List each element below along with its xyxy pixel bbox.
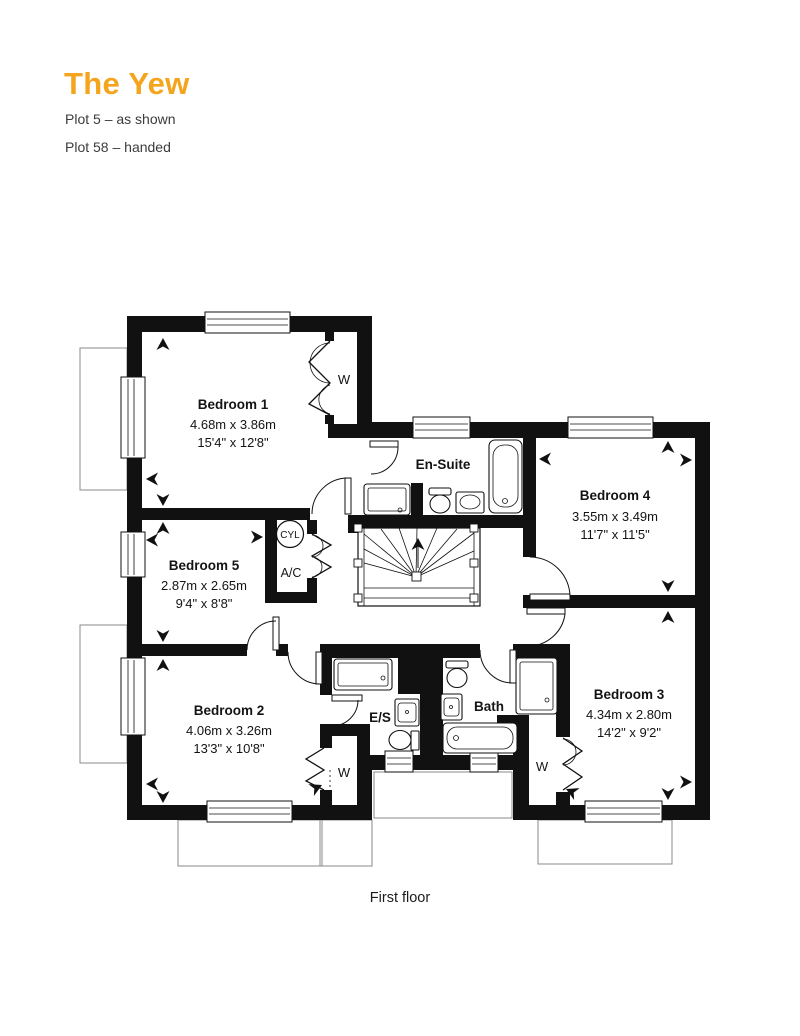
door (312, 478, 351, 514)
basin-icon (395, 699, 419, 726)
window (413, 417, 470, 438)
room-dim-metric: 2.87m x 2.65m (161, 578, 247, 593)
basin-icon (456, 492, 484, 513)
staircase (354, 524, 480, 606)
bedroom1-room: Bedroom 1 4.68m x 3.86m 15'4" x 12'8" (190, 397, 276, 450)
room-dim-imperial: 13'3" x 10'8" (193, 741, 265, 756)
room-name: Bedroom 3 (594, 687, 665, 702)
room-dim-metric: 4.06m x 3.26m (186, 723, 272, 738)
floorplan-page: The Yew Plot 5 – as shown Plot 58 – hand… (0, 0, 800, 1036)
room-dim-metric: 4.68m x 3.86m (190, 417, 276, 432)
shower-icon (516, 658, 557, 714)
door (288, 652, 322, 684)
cylinder-symbol: CYL (277, 521, 304, 548)
window (205, 312, 290, 333)
room-dim-imperial: 11'7" x 11'5" (580, 527, 650, 542)
basin-icon (441, 694, 462, 720)
room-name: Bedroom 5 (169, 558, 240, 573)
toilet-icon (389, 731, 419, 751)
window (121, 658, 145, 735)
wardrobe-label: W (338, 765, 351, 780)
ensuite-fixtures (364, 440, 522, 515)
door (247, 617, 279, 650)
bathtub-icon (443, 723, 517, 753)
window (385, 751, 413, 772)
floor-caption: First floor (0, 890, 800, 906)
bedroom2-room: Bedroom 2 4.06m x 3.26m 13'3" x 10'8" (186, 703, 272, 756)
window (121, 377, 145, 458)
bath-label: Bath (474, 699, 504, 714)
bedroom5-room: Bedroom 5 2.87m x 2.65m 9'4" x 8'8" (161, 558, 247, 611)
shower-icon (334, 659, 392, 690)
toilet-icon (446, 661, 468, 688)
room-dim-imperial: 14'2" x 9'2" (597, 725, 661, 740)
window (585, 801, 662, 822)
door (332, 695, 362, 726)
bedroom4-room: Bedroom 4 3.55m x 3.49m 11'7" x 11'5" (572, 488, 658, 542)
bedroom3-room: Bedroom 3 4.34m x 2.80m 14'2" x 9'2" (586, 687, 672, 740)
room-name: Bedroom 4 (580, 488, 651, 503)
es-label: E/S (369, 710, 391, 725)
room-name: Bedroom 1 (198, 397, 269, 412)
floor-plan-svg: CYL Bedroom 1 (0, 0, 800, 1036)
shower-icon (364, 484, 410, 515)
room-name: Bedroom 2 (194, 703, 265, 718)
airing-cupboard-label: A/C (281, 566, 302, 580)
door (370, 441, 398, 474)
bifold-door (309, 341, 330, 415)
room-dim-imperial: 15'4" x 12'8" (197, 435, 269, 450)
room-dim-imperial: 9'4" x 8'8" (176, 596, 233, 611)
room-dim-metric: 4.34m x 2.80m (586, 707, 672, 722)
door (530, 557, 570, 600)
bifold-door (312, 534, 331, 578)
cylinder-label: CYL (280, 530, 300, 541)
wardrobe-label: W (338, 372, 351, 387)
window (207, 801, 292, 822)
ensuite-label: En-Suite (416, 457, 471, 472)
toilet-icon (429, 488, 451, 513)
room-dim-metric: 3.55m x 3.49m (572, 509, 658, 524)
bathtub-icon (489, 440, 522, 513)
bifold-door (563, 738, 582, 790)
window (121, 532, 145, 577)
window (568, 417, 653, 438)
door (480, 650, 516, 683)
door (527, 608, 565, 646)
window (470, 751, 498, 772)
wardrobe-label: W (536, 759, 549, 774)
